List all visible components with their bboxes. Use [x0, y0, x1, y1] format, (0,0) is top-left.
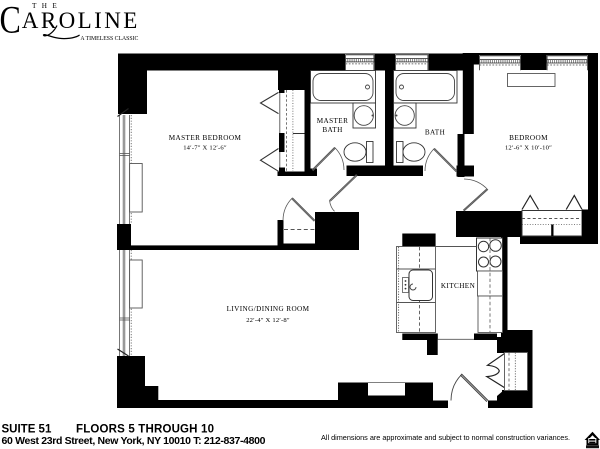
svg-text:BATH: BATH — [425, 129, 445, 137]
svg-text:BATH: BATH — [322, 126, 342, 134]
svg-text:22′-4″ X 12′-8″: 22′-4″ X 12′-8″ — [246, 317, 290, 324]
svg-text:MASTER: MASTER — [317, 117, 349, 125]
svg-text:A TIMELESS CLASSIC: A TIMELESS CLASSIC — [80, 36, 138, 42]
svg-text:12′-6″ X 10′-10″: 12′-6″ X 10′-10″ — [505, 145, 552, 152]
svg-text:KITCHEN: KITCHEN — [441, 282, 476, 290]
svg-text:All dimensions are approximate: All dimensions are approximate and subje… — [321, 433, 570, 442]
svg-text:C: C — [0, 0, 21, 41]
svg-text:60 West 23rd Street, New York,: 60 West 23rd Street, New York, NY 10010 … — [2, 435, 266, 447]
svg-text:BEDROOM: BEDROOM — [509, 134, 548, 142]
svg-text:14′-7″ X 12′-6″: 14′-7″ X 12′-6″ — [183, 145, 227, 152]
svg-text:LIVING/DINING ROOM: LIVING/DINING ROOM — [227, 305, 310, 313]
svg-text:MASTER BEDROOM: MASTER BEDROOM — [169, 134, 242, 142]
svg-text:SUITE 51: SUITE 51 — [2, 423, 52, 435]
svg-text:FLOORS 5 THROUGH 10: FLOORS 5 THROUGH 10 — [76, 423, 214, 435]
